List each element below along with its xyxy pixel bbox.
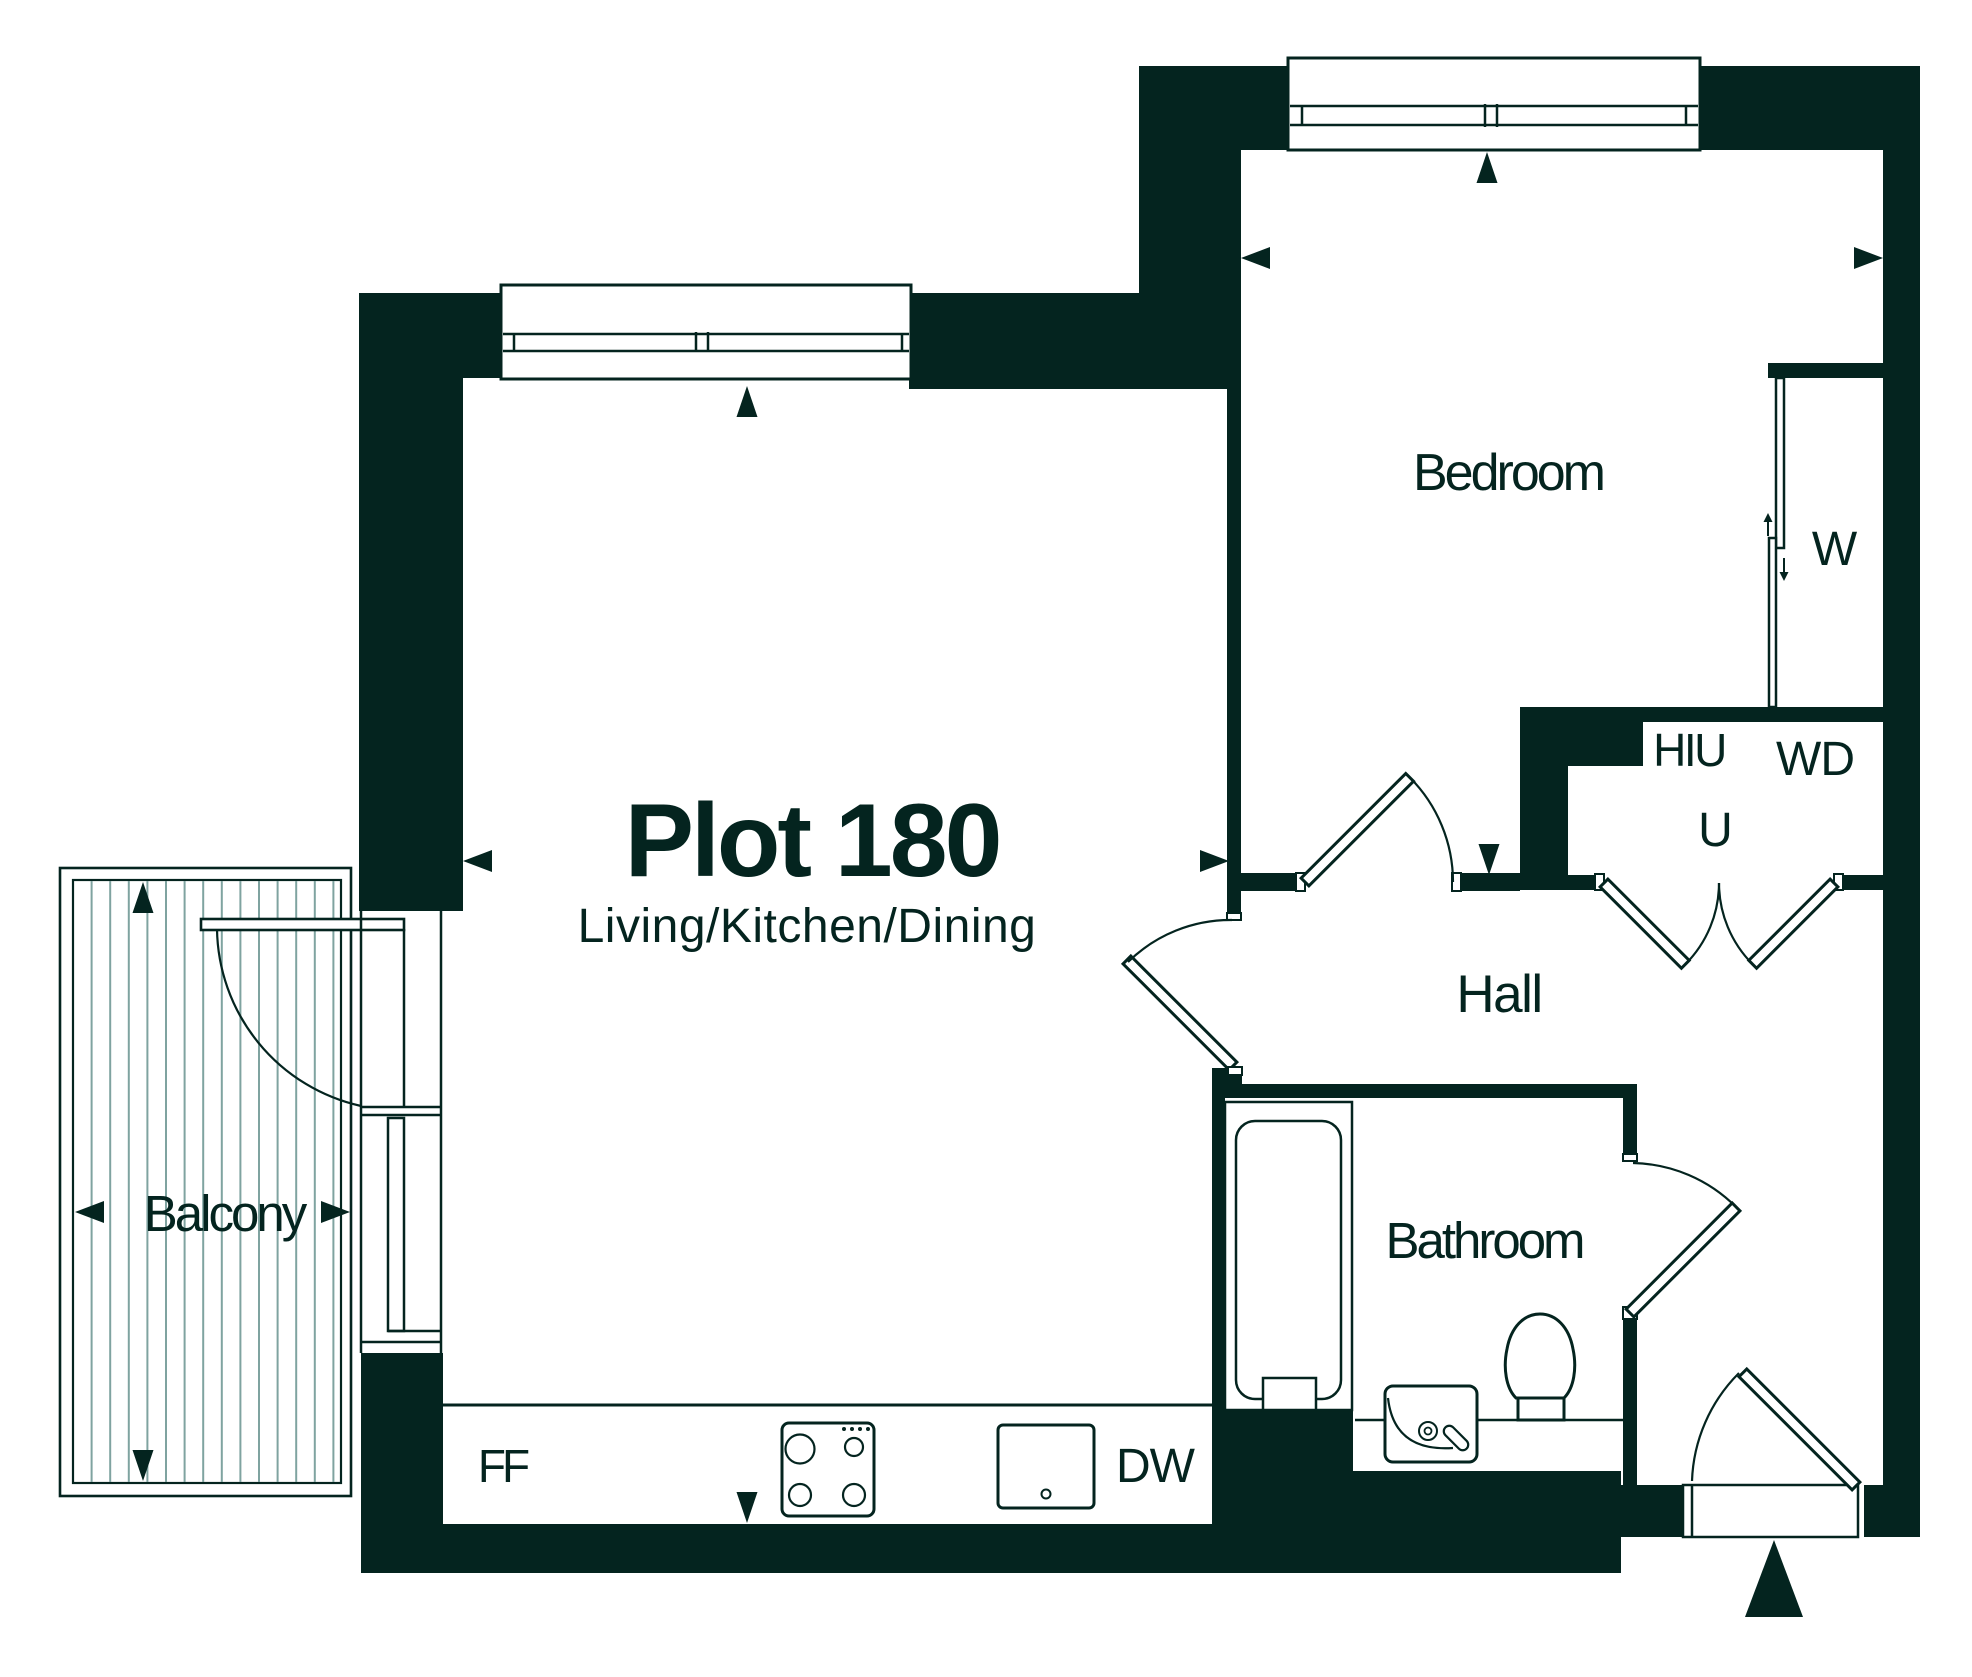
svg-text:HIU: HIU [1653,724,1725,776]
svg-text:Living/Kitchen/Dining: Living/Kitchen/Dining [578,900,1037,953]
svg-text:W: W [1812,523,1858,576]
svg-text:DW: DW [1116,1440,1196,1493]
svg-text:WD: WD [1776,733,1854,786]
svg-text:Plot 180: Plot 180 [625,783,1000,899]
svg-text:FF: FF [478,1440,529,1492]
svg-text:Hall: Hall [1456,965,1541,1024]
svg-text:Bedroom: Bedroom [1413,444,1603,502]
svg-text:U: U [1698,804,1732,857]
svg-text:Bathroom: Bathroom [1385,1212,1583,1269]
svg-text:Balcony: Balcony [144,1185,308,1242]
